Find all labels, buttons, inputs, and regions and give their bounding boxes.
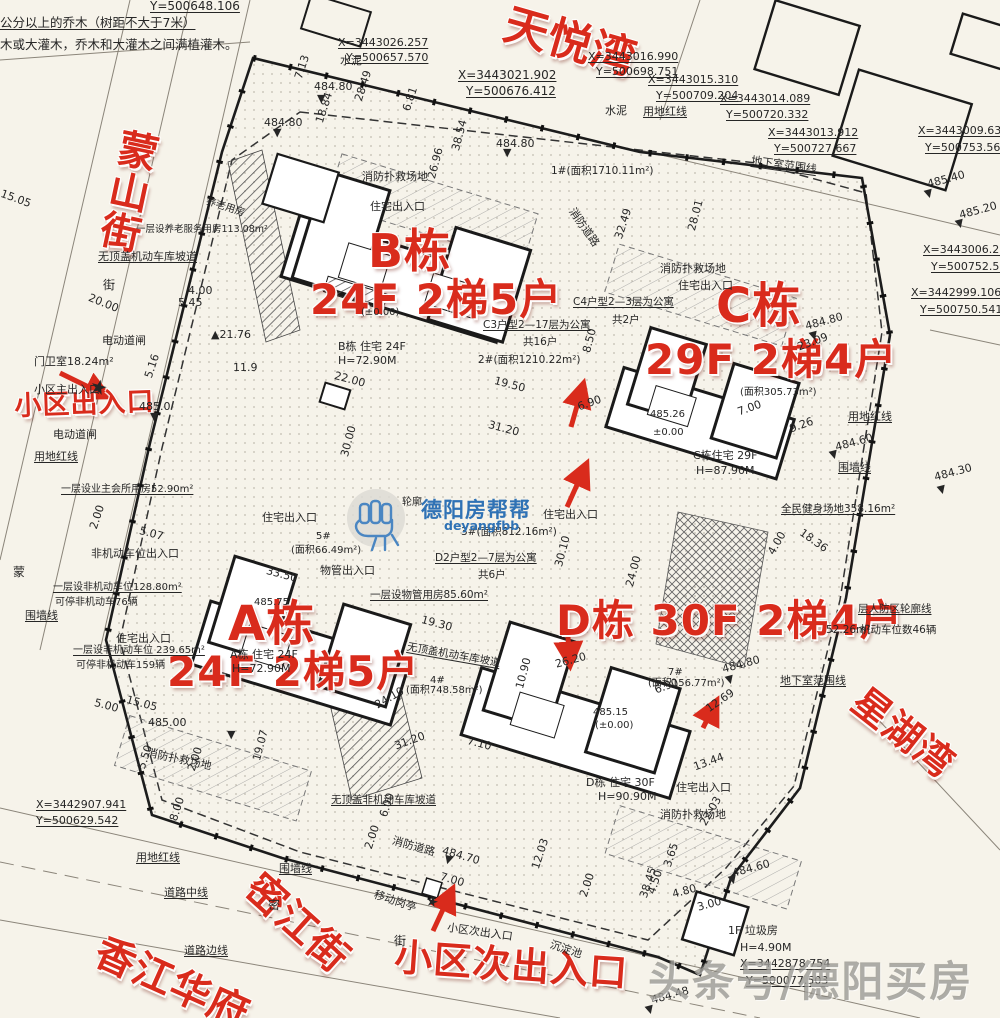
map-label: 一层设非机动车位 239.65m² (73, 645, 205, 656)
map-label: (面积748.58m²) (406, 685, 483, 696)
map-label: 用地红线 (136, 852, 180, 864)
map-label: 4.80 (671, 883, 698, 901)
map-label: 围墙线 (279, 863, 312, 875)
secondary-entrance-marker: ★ (424, 894, 440, 912)
map-label: 公分以上的乔木（树距不大于7米） (0, 16, 195, 30)
map-label: 街 (394, 935, 406, 948)
label-secondary-entrance: 小区次出入口 (393, 936, 629, 995)
map-label: 19.50 (493, 375, 527, 395)
map-label: C4户型2—3层为公寓 (573, 297, 674, 309)
map-label: 484.60 (731, 858, 771, 880)
map-label: X=3443009.639 (918, 125, 1000, 137)
map-label: 消防道路 (566, 206, 601, 249)
map-label: Y=500727.667 (774, 143, 856, 155)
map-label: C3户型2—17层为公寓 (483, 320, 591, 332)
map-label: 7.10 (466, 735, 493, 753)
map-label: 全民健身场地358.16m² (781, 504, 895, 516)
label-building-b-spec: 24F 2梯5户 (310, 276, 562, 323)
map-label: 蒙 (13, 566, 25, 579)
map-label: D2户型2—7层为公寓 (435, 553, 537, 565)
map-label: 28.49 (353, 69, 374, 103)
map-label: X=3442907.941 (36, 799, 126, 811)
map-label: 住宅出入口 (370, 201, 425, 213)
map-label: 38.54 (450, 119, 470, 153)
map-label: 5# (316, 531, 331, 542)
map-label: ▲21.76 (211, 329, 251, 341)
map-label: 30.00 (339, 425, 359, 459)
map-label: 484.60 (834, 432, 874, 454)
site-plan: 德阳房帮帮 deyangfbb 头条号/德阳买房 天悦湾蒙山街小区出入口B栋24… (0, 0, 1000, 1018)
map-label: 消防扑救场地 (660, 263, 726, 275)
map-label: 484.80 (264, 117, 303, 129)
map-label: 水泥 (340, 55, 362, 67)
map-label: Y=500629.542 (36, 815, 118, 827)
map-label: 5.00 (93, 697, 120, 715)
map-label: 22.00 (333, 370, 367, 390)
map-label: 20.00 (86, 292, 120, 315)
map-label: 用地红线 (643, 106, 687, 118)
map-label: 住宅出入口 (262, 512, 317, 524)
map-label: 住宅出入口 (116, 633, 171, 645)
map-label: 12.03 (530, 837, 551, 871)
map-label: ▼ (936, 483, 947, 497)
map-label: B栋 住宅 24F (338, 341, 406, 353)
map-label: 机动车位数46辆 (860, 625, 936, 637)
map-label: 消防扑救场地 (362, 171, 428, 183)
map-label: 1F 垃圾房 (728, 925, 778, 937)
map-label: 485.40 (926, 169, 966, 191)
label-building-d: D栋 30F 2梯4户 (556, 597, 903, 644)
map-label: Y=500753.566 (925, 142, 1000, 154)
map-label: 485.26 (650, 409, 685, 420)
map-label: 26.96 (426, 147, 446, 181)
map-label: H=90.90M (598, 791, 656, 803)
map-label: H=72.90M (232, 663, 290, 675)
map-label: 非机动车位出入口 (91, 548, 179, 560)
map-label: X=3443006.225 (923, 244, 1000, 256)
map-label: 住宅出入口 (678, 280, 733, 292)
map-label: Y=500648.106 (150, 0, 240, 13)
map-label: 8.00 (168, 796, 187, 823)
map-label: X=3443016.990 (588, 51, 678, 63)
map-label: 13.44 (692, 751, 726, 773)
map-label: 养老用房 (205, 196, 246, 219)
map-label: 485.75 (254, 597, 289, 608)
map-label: X=3443026.257 (338, 37, 428, 49)
map-label: 地下室范围线 (750, 155, 817, 176)
map-label: X=3443021.902 (458, 69, 556, 82)
map-label: 9.26 (788, 416, 815, 436)
map-label: 2.00 (578, 872, 597, 899)
map-label: 2.00 (363, 824, 382, 851)
map-label: 木或大灌木，乔木和大灌木之间满植灌木。 (0, 38, 238, 52)
map-label: 19.30 (420, 614, 454, 634)
map-label: (面积305.73m²) (740, 387, 817, 398)
map-label: 24.00 (624, 555, 644, 589)
label-xiangjiang-huafu: 香江华府 (88, 930, 256, 1018)
map-label: 1#(面积1710.11m²) (551, 166, 654, 178)
map-label: 485.00 (148, 717, 187, 729)
map-label: X=3443015.310 (648, 74, 738, 86)
map-label: 地下室范围线 (780, 675, 846, 687)
map-label: 485.15 (593, 707, 628, 718)
map-label: 484.30 (933, 462, 973, 484)
map-label: 7.00 (736, 399, 763, 419)
map-label: 10.90 (514, 657, 534, 691)
map-label: ▼ (150, 411, 158, 423)
map-label: A栋 住宅 24F (230, 649, 298, 661)
map-label: 一层设物管用房85.60m² (370, 590, 488, 602)
map-label: 6.81 (401, 86, 420, 113)
map-label: 7.00 (439, 871, 466, 890)
map-label: X=3443014.089 (720, 93, 810, 105)
map-label: 水泥 (605, 105, 627, 117)
map-label: 26.20 (554, 651, 588, 671)
map-label: Y=500720.332 (726, 109, 808, 121)
label-building-c-spec: 29F 2梯4户 (645, 336, 897, 383)
map-label: 5.07 (138, 525, 165, 543)
watermark-handle: deyangfbb (444, 518, 519, 533)
map-label: 7.13 (293, 54, 312, 81)
map-label: 484.80 (496, 138, 535, 150)
map-label: H=87.90M (696, 465, 754, 477)
map-label: ▼ (317, 93, 325, 105)
map-label: 可停非机动车159辆 (76, 660, 165, 671)
map-label: (±0.00) (595, 720, 633, 731)
map-label: 一层设养老服务用房113.08m² (136, 225, 268, 236)
map-label: X=3442999.106 (911, 287, 1000, 299)
map-label: 用地红线 (848, 411, 892, 423)
map-label: ▼ (808, 329, 819, 343)
map-label: 6.90 (576, 394, 603, 414)
map-label: ±0.00 (653, 427, 684, 438)
map-label: Y=500676.412 (466, 85, 556, 98)
map-label: 消防道路 (391, 835, 437, 859)
map-label: 15.05 (0, 188, 33, 210)
watermark-deyangfbb: 德阳房帮帮 deyangfbb (340, 480, 420, 556)
map-label: 485.20 (958, 200, 998, 222)
label-xinghuwan: 星湖湾 (844, 680, 962, 786)
map-label: 无顶盖机动车库坡道 (406, 642, 501, 670)
map-label: 31.20 (393, 730, 427, 752)
map-label: 物管出入口 (320, 565, 375, 577)
map-label: 3.00 (696, 896, 723, 914)
map-label: 3.65 (662, 842, 681, 869)
map-label: 共16户 (523, 337, 557, 349)
map-label: 4.00 (766, 530, 789, 557)
map-label: 18.36 (797, 527, 830, 555)
map-label: 住宅出入口 (543, 509, 598, 521)
watermark-toutiao: 头条号/德阳买房 (648, 948, 973, 1009)
map-label: 密 (268, 899, 280, 912)
map-label: 19.07 (251, 729, 271, 763)
map-label: 街 (103, 279, 115, 292)
map-label: 30.10 (553, 535, 573, 569)
map-label: 用地红线 (34, 451, 78, 463)
map-label: 道路边线 (184, 945, 228, 957)
map-label: 28.01 (686, 199, 706, 233)
map-label: ▼ (273, 127, 281, 139)
map-label: 15.05 (125, 694, 159, 714)
map-label: 层人防区轮廓线 (858, 604, 932, 616)
map-label: 围墙线 (25, 610, 58, 622)
map-label: ▼ (227, 729, 235, 741)
map-label: 可停非机动车76辆 (55, 597, 138, 608)
map-label: 32.49 (613, 207, 634, 241)
map-label: 移动岗亭 (372, 889, 418, 914)
map-label: 5.45 (178, 297, 203, 309)
map-label: 道路中线 (164, 887, 208, 899)
fist-icon (340, 480, 420, 556)
map-label: 5.16 (143, 353, 162, 380)
map-label: 一层设非机动车位128.80m² (53, 582, 182, 593)
label-mijiang-street: 密江街 (236, 866, 357, 982)
map-label: 无顶盖机动车库坡道 (98, 251, 197, 263)
map-label: 2.00 (88, 504, 107, 531)
map-label: 电动道闸 (53, 429, 97, 441)
label-building-b: B栋 (368, 226, 451, 278)
map-label: 12.69 (704, 687, 737, 715)
map-label: C栋住宅 29F (693, 450, 758, 462)
map-label: 33.50 (265, 565, 299, 585)
map-label: (±0.00) (361, 307, 399, 318)
map-label: 共2户 (612, 315, 640, 327)
map-label: 31.20 (487, 419, 521, 439)
map-label: 一层设业主会所用房52.90m² (61, 484, 193, 495)
map-label: H=72.90M (338, 355, 396, 367)
map-label: 电动道闸 (102, 335, 146, 347)
map-label: Y=500750.541 (920, 304, 1000, 316)
map-label: ▼ (443, 853, 455, 867)
map-label: 11.9 (233, 362, 258, 374)
map-label: 住宅出入口 (676, 782, 731, 794)
map-label: 共6户 (478, 570, 506, 582)
map-label: ▼ (503, 147, 511, 159)
map-label: X=3443013.912 (768, 127, 858, 139)
map-label: 2#(面积1210.22m²) (478, 355, 581, 367)
map-label: Y=500752.585 (931, 261, 1000, 273)
map-label: 围墙线 (838, 462, 871, 474)
label-mengshan-street: 蒙山街 (94, 128, 165, 260)
map-label: ▼ (724, 673, 735, 687)
map-label: D栋 住宅 30F (586, 777, 655, 789)
map-label: 门卫室18.24m² (34, 356, 114, 368)
